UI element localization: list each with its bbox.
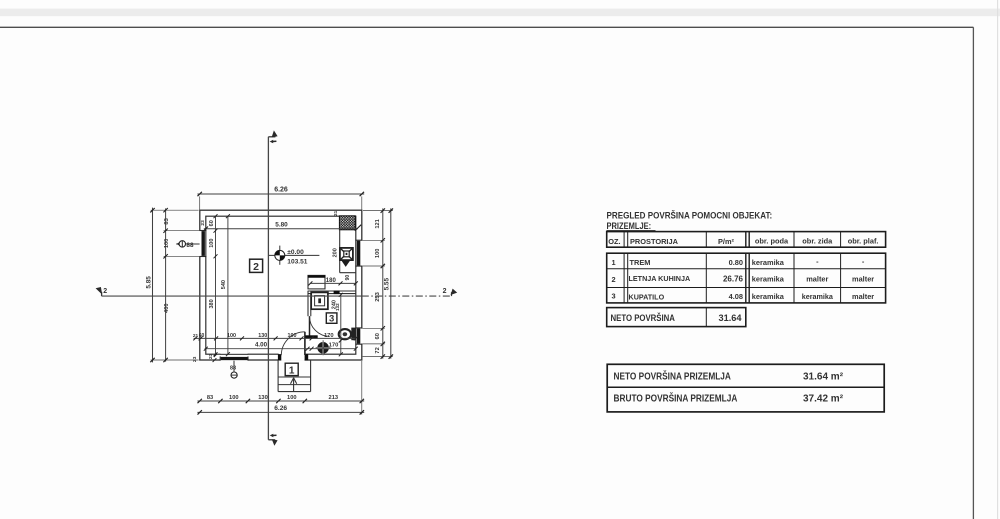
svg-text:400: 400 — [164, 303, 170, 313]
svg-text:88: 88 — [186, 242, 194, 249]
svg-text:malter: malter — [852, 274, 874, 283]
svg-text:keramika: keramika — [802, 292, 834, 301]
svg-text:83: 83 — [207, 395, 213, 401]
svg-text:2: 2 — [103, 288, 107, 295]
svg-text:130: 130 — [258, 395, 268, 401]
svg-text:72: 72 — [375, 347, 381, 353]
svg-text:malter: malter — [852, 292, 874, 301]
svg-text:KUPATILO: KUPATILO — [629, 293, 665, 302]
svg-text:TREM: TREM — [630, 258, 651, 267]
svg-text:3: 3 — [329, 314, 334, 325]
svg-text:23: 23 — [192, 356, 198, 362]
svg-text:keramika: keramika — [752, 258, 785, 267]
svg-text:170: 170 — [324, 333, 334, 339]
svg-text:malter: malter — [806, 274, 828, 283]
svg-text:60: 60 — [209, 220, 215, 226]
svg-text:PROSTORIJA: PROSTORIJA — [630, 237, 679, 246]
svg-text:4.00: 4.00 — [255, 342, 268, 349]
svg-text:90: 90 — [345, 275, 351, 281]
svg-text:2: 2 — [253, 261, 259, 273]
svg-text:253: 253 — [375, 292, 381, 302]
svg-text:26.76: 26.76 — [723, 274, 744, 283]
svg-text:OZ.: OZ. — [608, 237, 620, 246]
svg-text:100: 100 — [229, 395, 239, 401]
svg-text:P/m²: P/m² — [718, 237, 735, 246]
svg-text:obr. zida: obr. zida — [802, 237, 833, 246]
svg-text:21: 21 — [333, 210, 339, 216]
svg-text:6.26: 6.26 — [274, 187, 288, 194]
svg-text:213: 213 — [329, 395, 339, 401]
svg-text:100: 100 — [164, 239, 170, 249]
svg-text:540: 540 — [221, 280, 227, 289]
svg-text:23: 23 — [200, 220, 206, 226]
svg-text:100: 100 — [209, 239, 215, 248]
svg-text:2: 2 — [612, 275, 616, 284]
svg-text:4.08: 4.08 — [729, 292, 743, 301]
svg-text:obr. plaf.: obr. plaf. — [848, 237, 879, 246]
svg-text:0.80: 0.80 — [729, 258, 743, 267]
svg-text:380: 380 — [209, 299, 215, 308]
svg-text:NETO POVRŠINA PRIZEMLJA: NETO POVRŠINA PRIZEMLJA — [614, 370, 732, 382]
svg-text:83: 83 — [164, 218, 170, 224]
svg-text:100: 100 — [288, 333, 297, 339]
svg-text:BRUTO POVRŠINA PRIZEMLJA: BRUTO POVRŠINA PRIZEMLJA — [614, 392, 738, 404]
svg-text:60: 60 — [199, 333, 205, 339]
svg-text:23: 23 — [208, 353, 214, 359]
svg-text:1: 1 — [612, 258, 616, 267]
svg-text:NETO POVRŠINA: NETO POVRŠINA — [611, 311, 675, 323]
svg-text:1: 1 — [289, 365, 295, 376]
svg-text:100: 100 — [287, 395, 297, 401]
svg-text:132: 132 — [335, 303, 340, 311]
svg-text:±0.00: ±0.00 — [287, 249, 304, 256]
svg-text:37.42 m²: 37.42 m² — [803, 394, 844, 405]
svg-text:5.85: 5.85 — [146, 276, 153, 289]
svg-text:130: 130 — [258, 333, 267, 339]
svg-text:3: 3 — [612, 291, 616, 300]
svg-text:6.26: 6.26 — [274, 405, 287, 412]
svg-text:5.80: 5.80 — [275, 221, 288, 228]
svg-text:keramika: keramika — [752, 274, 785, 283]
svg-text:21: 21 — [193, 333, 199, 339]
svg-text:keramika: keramika — [752, 292, 785, 301]
svg-text:200: 200 — [333, 248, 339, 257]
svg-text:121: 121 — [375, 219, 381, 229]
svg-text:PRIZEMLJE:: PRIZEMLJE: — [607, 220, 652, 231]
svg-text:103.51: 103.51 — [287, 258, 308, 265]
svg-text:31.64: 31.64 — [719, 313, 743, 323]
svg-text:180: 180 — [326, 278, 337, 284]
svg-text:170: 170 — [329, 342, 339, 348]
svg-text:88: 88 — [230, 365, 236, 371]
svg-text:obr. poda: obr. poda — [755, 237, 789, 246]
svg-text:LETNJA KUHINJA: LETNJA KUHINJA — [629, 274, 691, 283]
svg-text:31.64 m²: 31.64 m² — [803, 371, 844, 382]
svg-text:100: 100 — [375, 249, 381, 258]
svg-text:2: 2 — [443, 288, 447, 295]
svg-text:5.55: 5.55 — [384, 278, 391, 291]
svg-text:60: 60 — [375, 333, 381, 339]
svg-text:100: 100 — [227, 333, 236, 339]
